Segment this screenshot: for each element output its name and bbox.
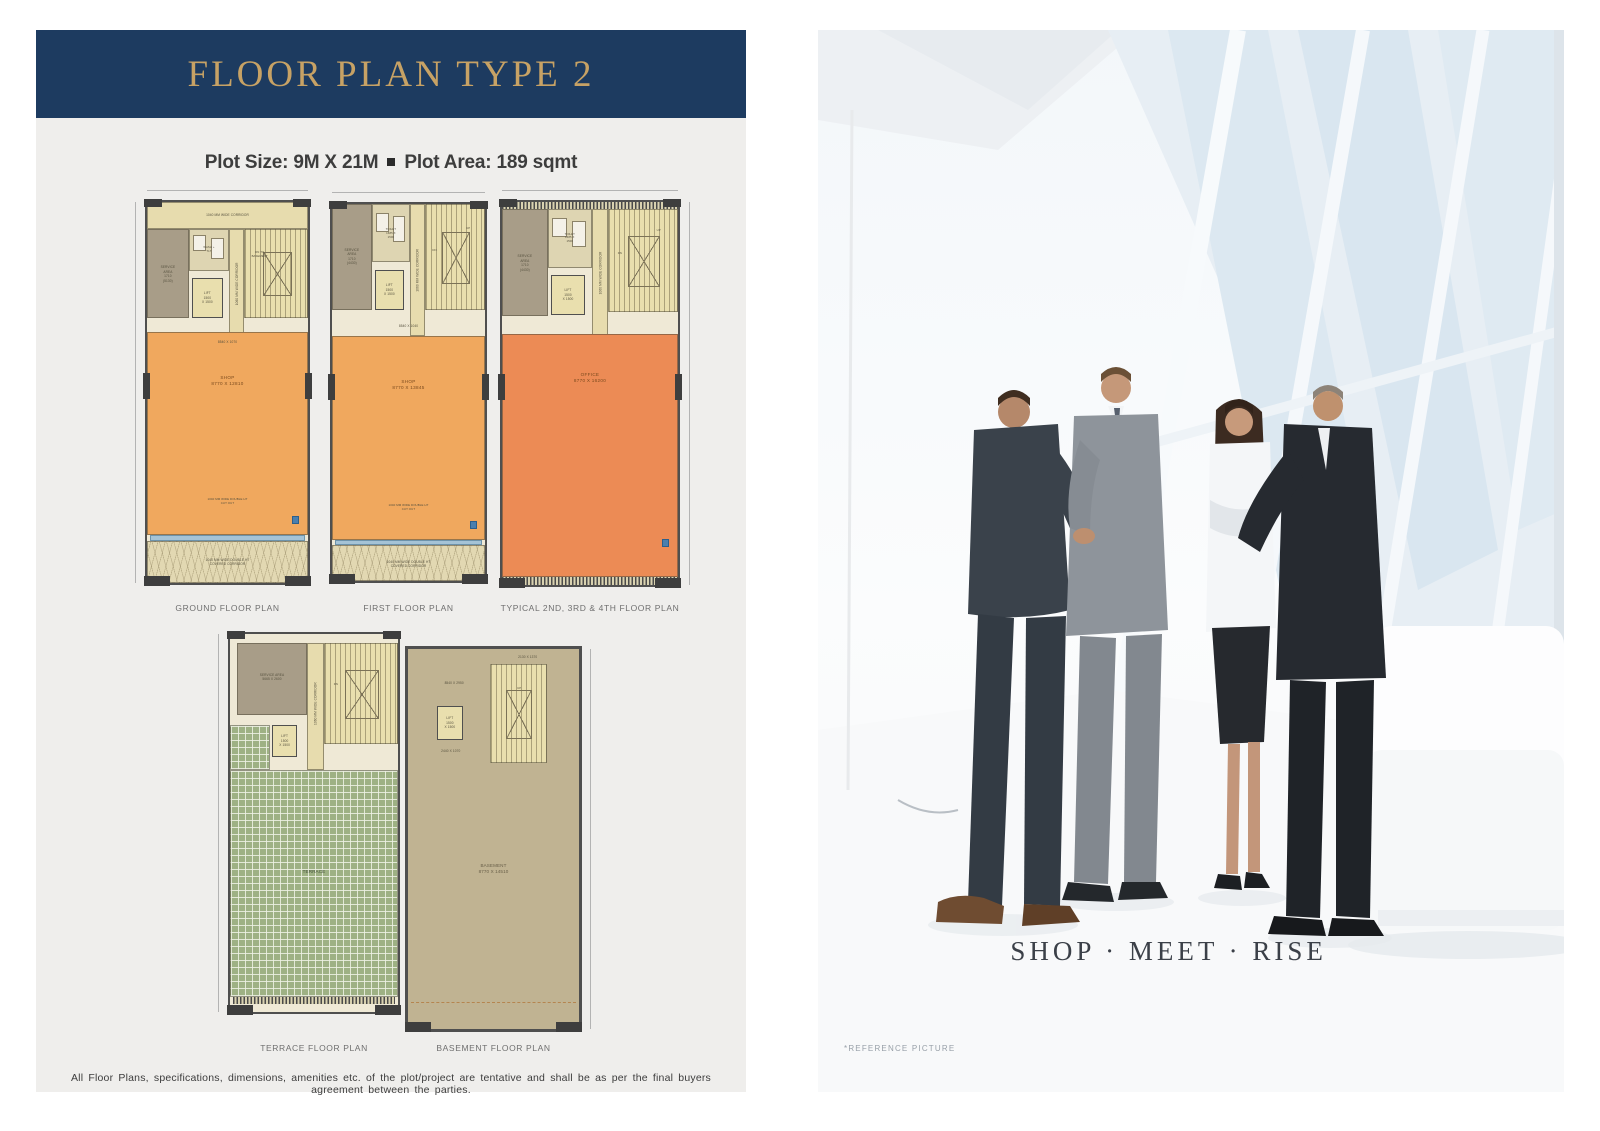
handshake [1073,528,1095,544]
photo-page: SHOP · MEET · RISE *REFERENCE PICTURE [818,30,1564,1092]
ground-floor-plan: 1040 MM WIDE CORRIDOR SERVICE AREA 1710 … [145,200,310,585]
cutout-label: 1040 MM WIDE DOUBLE HT CUT OUT [171,490,284,513]
service-area-label: SERVICE AREA 5665 X 2600 [238,659,305,697]
wall-pier [328,374,335,400]
plot-info: Plot Size: 9M X 21MPlot Area: 189 sqmt [36,152,746,174]
lift-label: LIFT 1500 X 1500 [375,272,404,308]
wall-pier [144,576,170,586]
ground-plan-label: GROUND FLOOR PLAN [145,603,310,613]
wall-pier [499,578,525,588]
basement-dim-top: 8540 X 2950 [422,676,487,691]
wall-pier [227,631,245,639]
service-area-label: SERVICE AREA 1710 (4430) [504,229,546,298]
wall-pier [655,578,681,588]
wall-pier [556,1022,582,1032]
wall-pier [482,374,489,400]
terrace-tiles [230,725,270,770]
door-icon [470,521,477,529]
disclaimer-text: All Floor Plans, specifications, dimensi… [50,1072,732,1096]
terrace-plan-label: TERRACE FLOOR PLAN [228,1043,400,1053]
office-photo [818,30,1564,1092]
plot-area-text: Plot Area: 189 sqmt [404,152,577,173]
first-plan-label: FIRST FLOOR PLAN [330,603,487,613]
shop-label: SHOP 8770 X 12810 [163,366,292,396]
wall-pier [462,574,488,584]
wall-pier [375,1005,401,1015]
brochure-spread: FLOOR PLAN TYPE 2 Plot Size: 9M X 21MPlo… [0,0,1600,1131]
first-floor-plan: SERVICE AREA 1710 (4430) TOILET 1685 X 1… [330,202,487,583]
terrace-floor-plan: SERVICE AREA 5665 X 2600 LIFT 1500 X 150… [228,632,400,1014]
wall-pier [329,574,355,584]
stair-up-label: UP [461,219,476,238]
lift-label: LIFT 1500 X 1500 [272,727,297,755]
entry-dim-label: 8540 X 1070 [187,336,268,347]
terrace-tiles [230,770,398,997]
stair-dn-label: DN [611,244,629,263]
wall-pier [499,199,517,207]
service-area-label: SERVICE AREA 1710 (4430) [334,223,371,291]
terrace-label: TERRACE [255,861,373,884]
railing-band [502,577,678,585]
stair-well [442,232,470,284]
corridor-label: 1060 MM WIDE CORRIDOR [593,221,609,324]
basement-dim-right: 2130 X 1370 [502,652,553,663]
typical-plan-label: TYPICAL 2ND, 3RD & 4TH FLOOR PLAN [480,603,700,613]
dimension-line [135,202,136,583]
corridor-label: 1060 MM WIDE CORRIDOR [230,236,244,331]
stair-dn-label: DN [327,676,344,695]
lift-dim-label: 2440 X 1070 [425,746,476,757]
toilet-label: TOILET 1685 X 1500 [550,215,590,261]
dashed-line [411,1002,575,1003]
wall-pier [144,199,162,207]
wall-pier [305,373,312,399]
stair-well [345,670,379,719]
typical-floor-plan: SERVICE AREA 1710 (4430) TOILET 1685 X 1… [500,200,680,587]
dimension-line [147,190,308,191]
wall-pier [675,374,682,400]
photo-caption: SHOP · MEET · RISE [908,936,1430,967]
cutout-label: 1040 MM WIDE DOUBLE HT CUT OUT [355,496,462,519]
office-label: OFFICE 8770 X 16200 [520,363,661,394]
wall-pier [285,576,311,586]
plot-size-text: Plot Size: 9M X 21M [205,152,379,173]
service-area-label: SERVICE AREA 1710 (5130) [149,240,188,309]
dimension-line [590,649,591,1029]
wall-pier [470,201,488,209]
title-banner: FLOOR PLAN TYPE 2 [36,30,746,118]
stair-up-label: UP [650,221,668,240]
wall-pier [293,199,311,207]
wall-pier [143,373,150,399]
basement-label: BASEMENT 8770 X 14510 [442,854,545,884]
stair-dn-label: DN [427,242,442,261]
corridor-label: 1060 MM WIDE CORRIDOR [411,219,425,321]
reference-note: *REFERENCE PICTURE [844,1044,955,1053]
dimension-line [332,192,485,193]
dimension-line [689,202,690,585]
wall-pier [663,199,681,207]
lift-label: LIFT 1500 X 1500 [192,280,223,316]
covered-corridor-label: 1040 MM WIDE DOUBLE HT COVERED CORRIDOR [347,550,469,578]
dimension-line [218,634,219,1012]
toilet-label: TOILET 1685 X 1500 [373,212,408,257]
corridor-label: 1060 MM WIDE CORRIDOR [308,653,323,755]
entry-dim-label: 8540 X 1040 [370,321,447,332]
lift-label: LIFT 1500 X 1500 [437,708,463,738]
railing-band [233,997,394,1005]
stair-note-label: DN TO BASEMENT [247,240,273,270]
basement-plan-label: BASEMENT FLOOR PLAN [405,1043,582,1053]
wall-pier [405,1022,431,1032]
wall-pier [329,201,347,209]
stair-up-label: UP [511,679,528,698]
door-icon [292,516,299,524]
floor-plan-page: FLOOR PLAN TYPE 2 Plot Size: 9M X 21MPlo… [36,30,746,1092]
shop-label: SHOP 8770 X 13845 [347,370,469,400]
covered-corridor-label: 1040 MM WIDE DOUBLE HT COVERED CORRIDOR [163,547,292,577]
dimension-line [502,190,678,191]
door-icon [662,539,669,547]
wall-pier [383,631,401,639]
page-title: FLOOR PLAN TYPE 2 [188,53,595,96]
top-corridor-label: 1040 MM WIDE CORRIDOR [163,206,292,225]
basement-floor-plan: 8540 X 2950 2130 X 1370 LIFT 1500 X 1500… [405,646,582,1032]
wash-label: WASH + TLT [190,232,227,266]
wall-pier [227,1005,253,1015]
railing-band [502,202,678,209]
stair-well [628,236,660,287]
wall-pier [498,374,505,400]
lift-label: LIFT 1500 X 1500 [551,277,584,313]
separator-square-icon [387,158,395,166]
